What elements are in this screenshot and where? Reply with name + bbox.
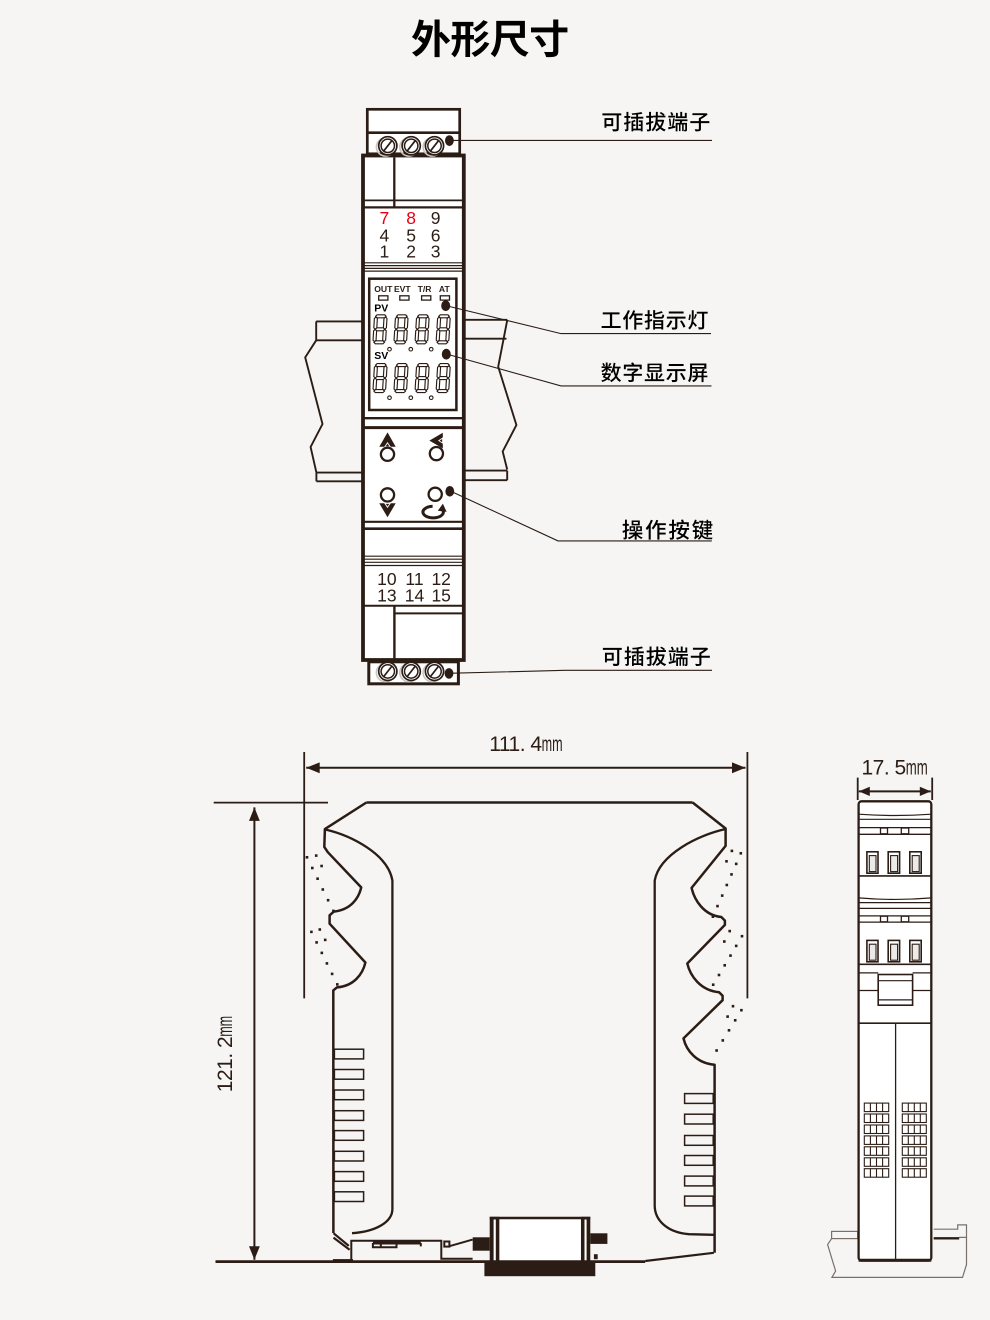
svg-text:15: 15 xyxy=(431,586,450,606)
svg-text:111. 4mm: 111. 4mm xyxy=(489,733,562,756)
svg-text:EVT: EVT xyxy=(394,284,411,294)
svg-text:OUT: OUT xyxy=(374,284,393,294)
svg-text:SV: SV xyxy=(374,350,388,362)
svg-text:13: 13 xyxy=(377,586,396,606)
svg-text:T/R: T/R xyxy=(418,284,433,294)
svg-text:17. 5mm: 17. 5mm xyxy=(862,756,928,779)
svg-text:14: 14 xyxy=(405,586,425,606)
svg-text:1: 1 xyxy=(380,242,390,262)
svg-text:AT: AT xyxy=(439,284,451,294)
svg-text:2: 2 xyxy=(406,242,416,262)
svg-text:121. 2mm: 121. 2mm xyxy=(214,1016,237,1092)
svg-text:3: 3 xyxy=(431,242,441,262)
svg-text:PV: PV xyxy=(374,302,388,314)
